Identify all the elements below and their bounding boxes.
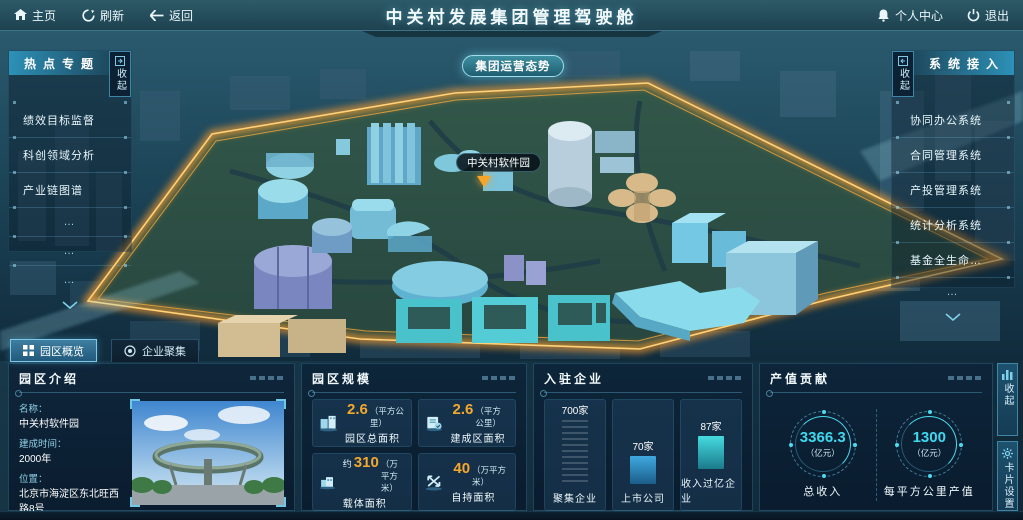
stat-value: 2.6 (347, 401, 368, 418)
collapse-label: 收起 (896, 68, 911, 92)
bar-cluster-enterprises (562, 420, 588, 484)
park-scale-panel: 园区规模 2.6 （平方公里） 园区总面积 (301, 363, 527, 511)
topic-placeholder: … (9, 236, 131, 265)
topic-item[interactable]: 绩效目标监督 (9, 103, 131, 137)
park-marker-icon[interactable] (477, 176, 491, 187)
stat-label: 载体面积 (343, 495, 405, 510)
topic-placeholder: … (9, 265, 131, 294)
stat-value: 310 (354, 454, 379, 471)
stat-carrier-area: 约 310 （万平方米） 载体面积 (312, 453, 412, 511)
stat-built-area: 2.6 （平方公里） 建成区面积 (418, 399, 516, 447)
top-bar: 主页 刷新 返回 中关村发展集团管理驾驶舱 个人中心 退出 (0, 0, 1023, 31)
group-operation-status-button[interactable]: 集团运营态势 (462, 55, 564, 77)
topic-item[interactable]: 产业链图谱 (9, 172, 131, 207)
gauge-label: 每平方公里产值 (884, 483, 975, 499)
stat-unit: （平方公里） (370, 405, 405, 429)
stat-self-held-area: 40 （万平方米） 自持面积 (418, 453, 516, 511)
map-3d-scene[interactable]: 集团运营态势 中关村软件园 (0, 31, 1023, 361)
hot-topics-title: 热点专题 (9, 51, 109, 75)
frame-corner (130, 399, 140, 409)
park-photo-image (132, 401, 284, 505)
field-label: 位置： (19, 471, 124, 485)
bottom-tabs: 园区概览 企业聚集 (10, 339, 199, 362)
stat-label: 自持面积 (451, 489, 509, 504)
collapse-icon (115, 56, 125, 66)
back-label: 返回 (169, 7, 193, 24)
output-value-panel: 产值贡献 3366.3 （亿元） 总收入 1300 (759, 363, 993, 511)
gear-icon (1002, 448, 1013, 459)
hot-topics-collapse-button[interactable]: 收起 (109, 51, 131, 97)
home-button[interactable]: 主页 (14, 7, 56, 24)
card-settings-label: 卡片设置 (1000, 462, 1015, 510)
refresh-label: 刷新 (100, 7, 124, 24)
stat-prefix: 约 (343, 457, 352, 470)
tab-label: 园区概览 (40, 343, 84, 359)
target-icon (124, 345, 136, 357)
chevron-down-icon (62, 301, 78, 309)
bar-value-label: 700家 (562, 402, 589, 417)
park-intro-panel: 园区介绍 名称： 中关村软件园 建成时间： 2000年 位置： 北京市海淀区东北… (8, 363, 295, 511)
tab-label: 企业聚集 (142, 343, 186, 359)
refresh-icon (82, 9, 95, 22)
page-title: 中关村发展集团管理驾驶舱 (320, 3, 703, 28)
resident-enterprises-panel: 入驻企业 700家 聚集企业 70家 上市公司 87家 收入过亿企 (533, 363, 753, 511)
bar-listed-companies (630, 456, 656, 484)
grid-icon (23, 345, 34, 356)
stat-label: 园区总面积 (345, 430, 405, 445)
warehouse-icon (319, 471, 336, 493)
tab-enterprise-cluster[interactable]: 企业聚集 (111, 339, 199, 362)
system-access-panel: 收起 系统接入 协同办公系统 合同管理系统 产投管理系统 统计分析系统 基金全生… (891, 50, 1015, 288)
gauge-ring: 1300 （亿元） (896, 411, 962, 477)
map-svg (0, 31, 1023, 361)
home-icon (14, 9, 27, 21)
panel-title: 园区介绍 (19, 370, 284, 387)
bottom-strip-decoration (0, 511, 1023, 520)
frame-corner (276, 399, 286, 409)
dashboard-root: 主页 刷新 返回 中关村发展集团管理驾驶舱 个人中心 退出 (0, 0, 1023, 520)
bar-card-billion: 87家 收入过亿企业 (680, 399, 742, 511)
stat-value: 40 (453, 460, 470, 477)
scroll-down-button[interactable] (892, 306, 1014, 330)
topic-item[interactable]: 科创领域分析 (9, 137, 131, 172)
exit-label: 退出 (985, 7, 1009, 24)
scroll-down-button[interactable] (9, 294, 131, 318)
system-item[interactable]: 合同管理系统 (892, 137, 1014, 172)
gauge-value: 3366.3 (800, 429, 846, 446)
bar-value-label: 70家 (632, 438, 653, 453)
field-value: 中关村软件园 (19, 415, 124, 430)
hot-topics-panel: 热点专题 收起 绩效目标监督 科创领域分析 产业链图谱 … … … (8, 50, 132, 252)
topic-placeholder: … (9, 207, 131, 236)
panel-corner-decoration (948, 376, 982, 380)
bar-category-label: 收入过亿企业 (681, 475, 741, 505)
gauge-value: 1300 (913, 429, 946, 446)
park-photo (132, 401, 284, 505)
intro-fields: 名称： 中关村软件园 建成时间： 2000年 位置： 北京市海淀区东北旺西路8号… (19, 399, 124, 520)
panels-collapse-button[interactable]: 收起 (997, 363, 1018, 436)
output-gauges: 3366.3 （亿元） 总收入 1300 （亿元） 每平方公里产值 (770, 399, 982, 511)
personal-center-button[interactable]: 个人中心 (877, 7, 943, 24)
power-icon (967, 9, 980, 22)
panel-corner-decoration (708, 376, 742, 380)
card-settings-button[interactable]: 卡片设置 (997, 441, 1018, 511)
top-actions: 个人中心 退出 (703, 7, 1023, 24)
stat-value: 2.6 (453, 401, 474, 418)
gauge-output-per-km: 1300 （亿元） 每平方公里产值 (877, 399, 983, 511)
tab-park-overview[interactable]: 园区概览 (10, 339, 97, 362)
system-access-collapse-button[interactable]: 收起 (892, 51, 914, 97)
system-access-list: 协同办公系统 合同管理系统 产投管理系统 统计分析系统 基金全生命… … (892, 97, 1014, 330)
bar-chart-icon (1002, 370, 1013, 380)
gauge-label: 总收入 (803, 483, 842, 499)
stat-total-area: 2.6 （平方公里） 园区总面积 (312, 399, 412, 447)
bar-card-cluster: 700家 聚集企业 (544, 399, 606, 511)
frame-corner (276, 497, 286, 507)
panel-corner-decoration (250, 376, 284, 380)
stat-unit: （万平方米） (472, 464, 509, 488)
system-item[interactable]: 产投管理系统 (892, 172, 1014, 207)
stat-unit: （万平方米） (381, 458, 405, 494)
stat-unit: （平方公里） (475, 405, 509, 429)
gauge-total-revenue: 3366.3 （亿元） 总收入 (770, 399, 876, 511)
back-button[interactable]: 返回 (150, 7, 193, 24)
document-building-icon (425, 412, 443, 434)
exit-button[interactable]: 退出 (967, 7, 1009, 24)
home-label: 主页 (32, 7, 56, 24)
title-trapezoid-decoration (362, 31, 662, 37)
gauge-ring: 3366.3 （亿元） (790, 411, 856, 477)
collapse-label: 收起 (1000, 383, 1015, 407)
field-label: 名称： (19, 401, 124, 415)
system-item[interactable]: 协同办公系统 (892, 103, 1014, 137)
field-label: 建成时间： (19, 436, 124, 450)
system-access-title: 系统接入 (914, 51, 1014, 75)
arrow-left-icon (150, 10, 164, 21)
field-value: 2000年 (19, 450, 124, 465)
park-map-label[interactable]: 中关村软件园 (456, 153, 541, 172)
stat-label: 建成区面积 (451, 430, 509, 445)
system-item[interactable]: 基金全生命… (892, 242, 1014, 277)
refresh-button[interactable]: 刷新 (82, 7, 124, 24)
chevron-down-icon (945, 313, 961, 321)
system-item[interactable]: 统计分析系统 (892, 207, 1014, 242)
enterprise-bar-chart: 700家 聚集企业 70家 上市公司 87家 收入过亿企业 (544, 399, 742, 511)
panel-corner-decoration (482, 376, 516, 380)
bar-card-listed: 70家 上市公司 (612, 399, 674, 511)
bell-icon (877, 9, 890, 22)
collapse-label: 收起 (113, 68, 128, 92)
gauge-unit: （亿元） (806, 447, 840, 459)
bar-value-label: 87家 (700, 418, 721, 433)
bar-over-billion-enterprises (698, 436, 724, 469)
bar-category-label: 上市公司 (621, 490, 665, 505)
hot-topics-list: 绩效目标监督 科创领域分析 产业链图谱 … … … (9, 97, 131, 318)
collapse-icon (898, 56, 908, 66)
bar-category-label: 聚集企业 (553, 490, 597, 505)
personal-center-label: 个人中心 (895, 7, 943, 24)
scale-stats-grid: 2.6 （平方公里） 园区总面积 2.6 （平方公里） 建 (312, 399, 516, 511)
top-nav: 主页 刷新 返回 (0, 7, 320, 24)
system-placeholder: … (892, 277, 1014, 306)
frame-corner (130, 497, 140, 507)
crossed-arrows-icon (425, 471, 444, 493)
gauge-unit: （亿元） (912, 447, 946, 459)
buildings-icon (319, 412, 338, 434)
